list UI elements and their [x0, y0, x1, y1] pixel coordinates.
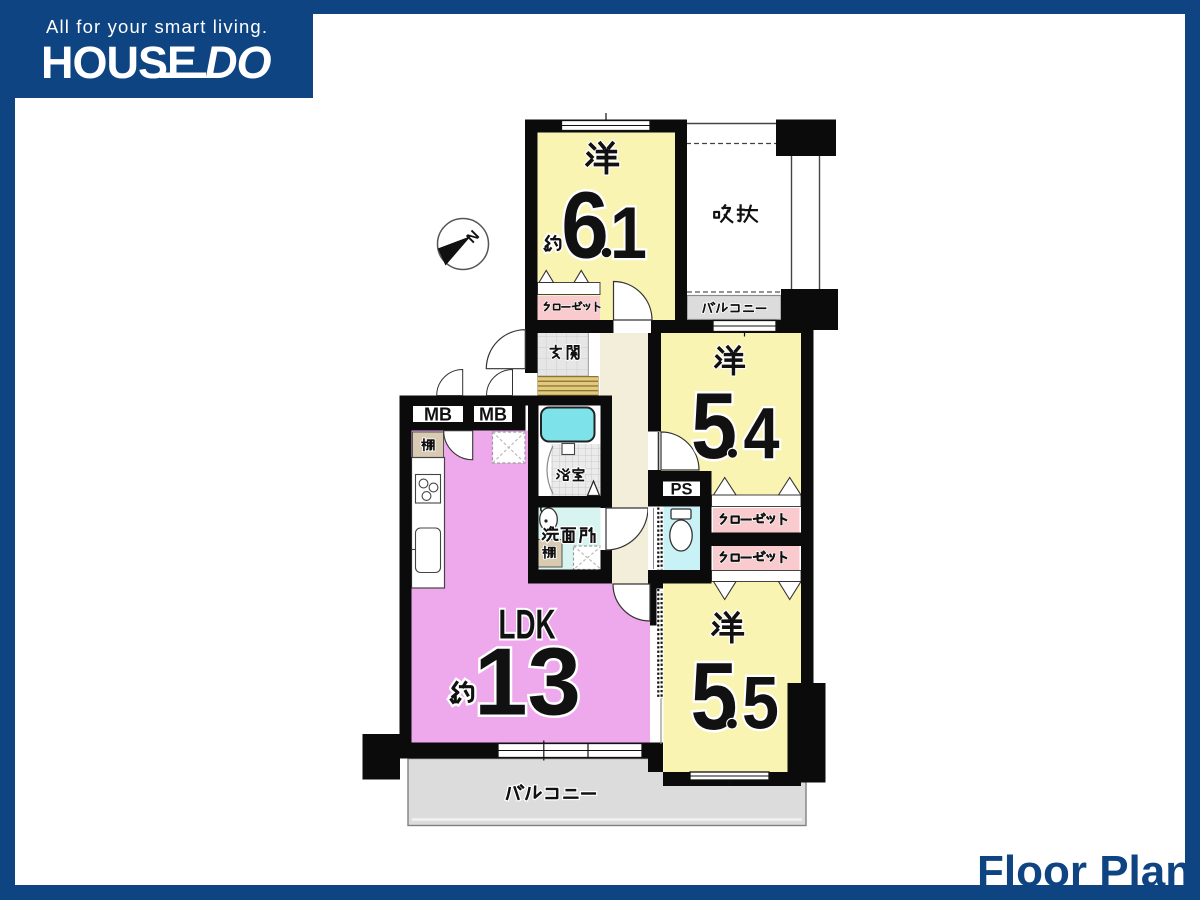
svg-text:6: 6	[561, 173, 609, 279]
svg-text:All for your smart living.: All for your smart living.	[46, 16, 268, 37]
svg-text:5: 5	[691, 643, 738, 750]
svg-text:DO: DO	[205, 37, 271, 88]
svg-text:1: 1	[610, 193, 647, 274]
svg-text:Floor Plan: Floor Plan	[977, 847, 1192, 896]
svg-text:MB: MB	[479, 405, 507, 425]
svg-text:PS: PS	[670, 481, 692, 499]
svg-text:MB: MB	[424, 405, 452, 425]
svg-text:5: 5	[691, 373, 737, 478]
svg-text:HOUSE: HOUSE	[41, 37, 196, 88]
svg-text:5: 5	[742, 662, 779, 745]
svg-text:13: 13	[474, 629, 581, 736]
svg-text:4: 4	[744, 394, 780, 474]
